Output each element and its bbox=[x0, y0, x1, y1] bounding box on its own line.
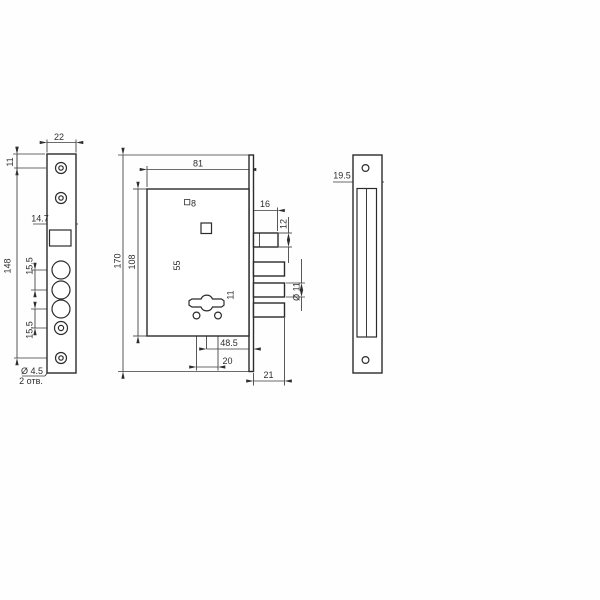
lock-body-view: 81 170 108 8 55 11 48.5 20 21 16 12 Ø 11 bbox=[113, 155, 306, 386]
faceplate-bolt-hole-2 bbox=[52, 281, 70, 299]
faceplate-bolt-hole-1 bbox=[52, 261, 70, 279]
faceplate-bolt-hole-3 bbox=[52, 300, 70, 318]
dim-label-bolt-throw: 21 bbox=[263, 370, 273, 380]
latch-bolt bbox=[254, 233, 279, 247]
dim-label-spindle-to-key: 55 bbox=[172, 260, 182, 270]
dim-label-square-cutout: 14.7 bbox=[31, 214, 49, 224]
dim-label-top-hole-offset: 11 bbox=[5, 157, 15, 166]
note-hole-count: 2 отв. bbox=[19, 376, 43, 386]
note-hole-diameter: Ø 4.5 bbox=[21, 366, 43, 376]
dim-label-body-width: 81 bbox=[193, 159, 203, 169]
dim-label-latch-width: 16 bbox=[260, 199, 270, 209]
svg-text:8: 8 bbox=[191, 199, 196, 209]
faceplate-screw-hole-top bbox=[56, 163, 67, 174]
dim-label-body-height: 108 bbox=[127, 254, 137, 269]
fixing-hole-left bbox=[193, 312, 200, 319]
strike-screw-hole-top bbox=[362, 165, 369, 172]
deadbolt-pin-1 bbox=[254, 262, 285, 276]
deadbolt-pin-2 bbox=[254, 283, 285, 297]
dim-label-hole-spacing: 20 bbox=[222, 356, 232, 366]
dim-label-hole-spacing-bottom: 15.5 bbox=[25, 321, 35, 339]
dim-label-backset: 48.5 bbox=[220, 338, 238, 348]
strike-plate-cutout bbox=[357, 189, 377, 338]
faceplate-small-hole bbox=[55, 322, 68, 335]
dim-label-faceplate-width: 22 bbox=[54, 132, 64, 142]
faceplate-screw-hole-bottom bbox=[56, 353, 67, 364]
dim-label-mounting-height: 148 bbox=[3, 258, 13, 273]
faceplate-screw-hole-second bbox=[56, 193, 67, 204]
dim-label-bolt-diameter: Ø 11 bbox=[292, 282, 302, 301]
faceplate-square-cutout bbox=[50, 230, 72, 246]
strike-screw-hole-bottom bbox=[362, 357, 369, 364]
faceplate-front-view: 22 11 148 14.7 15.5 15.5 Ø 4.5 2 отв. bbox=[3, 132, 79, 386]
dim-label-strike-width: 19.5 bbox=[333, 171, 351, 181]
dim-label-overall-height: 170 bbox=[113, 253, 123, 268]
lock-technical-drawing: 22 11 148 14.7 15.5 15.5 Ø 4.5 2 отв. bbox=[0, 0, 600, 600]
strike-plate-view: 19.5 bbox=[333, 155, 384, 373]
dim-label-key-to-holes: 11 bbox=[226, 290, 236, 299]
spindle-square-hole bbox=[201, 223, 212, 234]
dim-label-latch-height: 12 bbox=[279, 219, 289, 229]
fixing-hole-right bbox=[215, 312, 222, 319]
deadbolt-pin-3 bbox=[254, 303, 285, 317]
dim-label-hole-spacing-top: 15.5 bbox=[25, 257, 35, 275]
drawing-canvas: 22 11 148 14.7 15.5 15.5 Ø 4.5 2 отв. bbox=[0, 0, 600, 600]
